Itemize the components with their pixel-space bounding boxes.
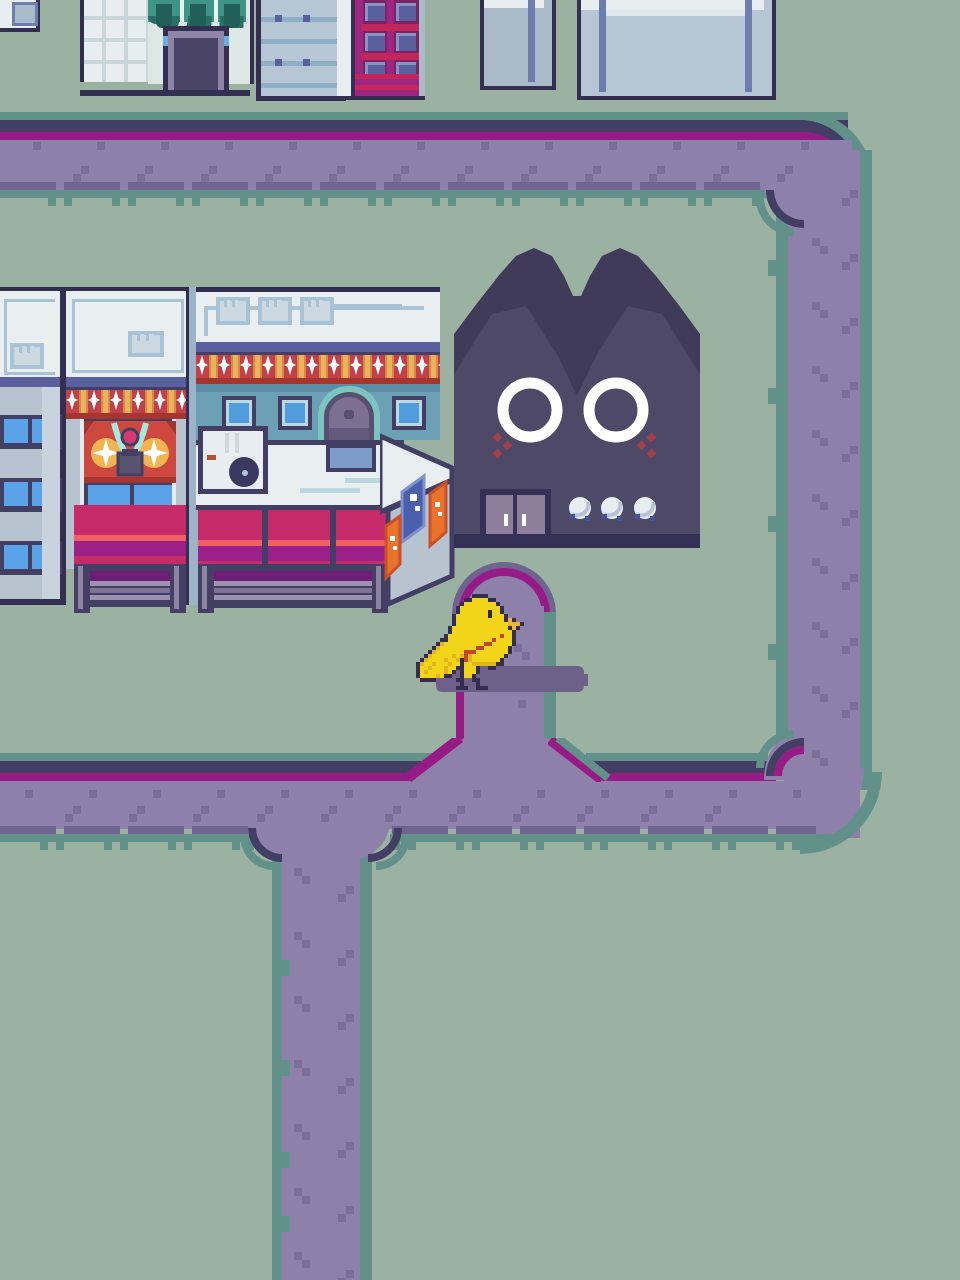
path-dot bbox=[457, 174, 465, 182]
path-dot bbox=[25, 790, 33, 798]
path-dot bbox=[785, 166, 793, 174]
path-dot bbox=[289, 142, 297, 150]
path-dot bbox=[329, 174, 337, 182]
stall-band bbox=[66, 377, 190, 387]
shop-window bbox=[222, 396, 256, 430]
path-dot bbox=[302, 876, 310, 884]
bird-shadow bbox=[552, 674, 588, 686]
path-dot bbox=[457, 806, 465, 814]
path-dot bbox=[649, 174, 657, 182]
right-path-teal-left bbox=[776, 216, 788, 756]
teal-notch bbox=[282, 1060, 290, 1076]
path-dot bbox=[585, 806, 593, 814]
teal-notch bbox=[282, 1216, 290, 1232]
path-dot bbox=[518, 700, 526, 708]
path-dot bbox=[346, 1270, 354, 1278]
path-dot bbox=[850, 574, 858, 582]
door-panel bbox=[174, 38, 218, 90]
path-dot bbox=[820, 694, 828, 702]
lower-path-navy-edge bbox=[0, 761, 436, 773]
path-dot bbox=[346, 1014, 354, 1022]
branch-teal-left bbox=[272, 846, 282, 1280]
path-dot bbox=[265, 806, 273, 814]
path-dot bbox=[338, 958, 346, 966]
path-dot bbox=[713, 174, 721, 182]
building-e-line bbox=[599, 0, 606, 92]
window-icon bbox=[300, 297, 334, 325]
tall-building-sign bbox=[0, 287, 60, 381]
path-dot bbox=[294, 868, 302, 876]
path-dot bbox=[812, 302, 820, 310]
green-awning bbox=[148, 0, 246, 22]
building-c-white-column bbox=[337, 0, 355, 96]
path-dot bbox=[850, 510, 858, 518]
path-dot bbox=[137, 806, 145, 814]
building-b bbox=[256, 0, 346, 101]
led-icon bbox=[207, 455, 216, 460]
path-dot bbox=[820, 630, 828, 638]
building-d-column bbox=[528, 0, 535, 82]
path-dot bbox=[641, 814, 649, 822]
path-dot bbox=[842, 518, 850, 526]
path-dot bbox=[393, 806, 401, 814]
building-c-right-column bbox=[419, 0, 425, 96]
path-dot bbox=[329, 806, 337, 814]
path-dot bbox=[302, 940, 310, 948]
path-dot bbox=[842, 710, 850, 718]
path-dot bbox=[265, 174, 273, 182]
top-path-magenta-edge bbox=[0, 132, 844, 140]
path-dot bbox=[793, 790, 801, 798]
path-dot bbox=[601, 790, 609, 798]
path-dot bbox=[729, 790, 737, 798]
path-dot bbox=[346, 1142, 354, 1150]
path-dot bbox=[137, 174, 145, 182]
path-dot bbox=[345, 790, 353, 798]
path-dot bbox=[842, 326, 850, 334]
lower-path-bump-teeth bbox=[40, 842, 254, 850]
teal-notch bbox=[768, 644, 776, 660]
stall-sign bbox=[66, 287, 190, 381]
path-dot bbox=[473, 790, 481, 798]
top-path-bump-dark bbox=[0, 182, 764, 190]
path-dot bbox=[812, 494, 820, 502]
top-path-bump-teeth bbox=[48, 198, 768, 206]
path-dot bbox=[820, 374, 828, 382]
path-dot bbox=[89, 790, 97, 798]
shop-shutter-shadow bbox=[212, 571, 372, 581]
path-dot bbox=[353, 142, 361, 150]
teal-notch bbox=[768, 388, 776, 404]
plant-icon bbox=[190, 4, 206, 28]
top-path-bump-teal bbox=[0, 190, 770, 198]
path-dot bbox=[73, 174, 81, 182]
path-dot bbox=[337, 166, 345, 174]
path-dot bbox=[842, 582, 850, 590]
path-dot bbox=[577, 814, 585, 822]
path-dot bbox=[209, 166, 217, 174]
awning-divider bbox=[180, 0, 184, 22]
stall-awning bbox=[66, 387, 190, 419]
path-dot bbox=[609, 142, 617, 150]
stall-shutter-base bbox=[88, 601, 178, 607]
path-dot bbox=[593, 166, 601, 174]
lower-path-teal-edge bbox=[586, 753, 768, 761]
building-a bbox=[80, 0, 250, 96]
window-icon bbox=[128, 331, 164, 357]
path-dot bbox=[521, 806, 529, 814]
path-dot bbox=[513, 814, 521, 822]
lower-path-teal-edge bbox=[0, 753, 436, 761]
grid-dot bbox=[275, 15, 282, 22]
path-dot bbox=[294, 1124, 302, 1132]
path-dot bbox=[417, 142, 425, 150]
teal-notch bbox=[768, 516, 776, 532]
shop-plaque bbox=[326, 444, 376, 472]
bird-sprite[interactable] bbox=[416, 594, 536, 690]
path-dot bbox=[850, 318, 858, 326]
path-dot bbox=[193, 814, 201, 822]
path-dot bbox=[665, 790, 673, 798]
path-dot bbox=[257, 814, 265, 822]
shop-shutter-base bbox=[212, 601, 372, 608]
path-dot bbox=[129, 814, 137, 822]
lower-path-magenta-edge bbox=[586, 773, 776, 781]
path-dot bbox=[820, 438, 828, 446]
path-dot bbox=[585, 174, 593, 182]
path-dot bbox=[97, 142, 105, 150]
stub-flare bbox=[400, 738, 612, 782]
path-dot bbox=[842, 390, 850, 398]
path-dot bbox=[657, 166, 665, 174]
cat-door[interactable] bbox=[483, 492, 548, 540]
building-d bbox=[480, 0, 556, 90]
c-panel bbox=[396, 33, 416, 51]
shop-window bbox=[278, 396, 312, 430]
grid-dot bbox=[303, 15, 310, 22]
door-panel-dark bbox=[329, 428, 369, 440]
path-dot bbox=[449, 814, 457, 822]
c-panel bbox=[365, 62, 385, 74]
lower-path-bump-teal bbox=[390, 834, 830, 842]
path-dot bbox=[777, 174, 785, 182]
path-dot bbox=[153, 790, 161, 798]
tall-building bbox=[0, 287, 66, 605]
building-fragment-topleft bbox=[0, 0, 40, 32]
path-dot bbox=[850, 638, 858, 646]
cat-building bbox=[452, 244, 702, 549]
path-dot bbox=[465, 166, 473, 174]
c-panel bbox=[396, 3, 416, 21]
shop-band bbox=[196, 342, 440, 352]
top-path-navy-edge bbox=[0, 120, 848, 132]
path-dot bbox=[820, 310, 828, 318]
path-dot bbox=[812, 238, 820, 246]
lower-path-bump-dark bbox=[392, 826, 816, 834]
path-dot bbox=[346, 886, 354, 894]
path-dot bbox=[281, 790, 289, 798]
vent-line bbox=[225, 433, 229, 453]
path-dot bbox=[649, 806, 657, 814]
path-dot bbox=[294, 1060, 302, 1068]
stall-banner bbox=[84, 421, 176, 489]
path-dot bbox=[842, 646, 850, 654]
shop-window bbox=[392, 396, 426, 430]
band-divider bbox=[330, 510, 336, 571]
path-dot bbox=[33, 142, 41, 150]
plant-icon bbox=[156, 4, 172, 28]
c-panel bbox=[365, 33, 385, 51]
path-dot bbox=[65, 814, 73, 822]
path-dot bbox=[521, 174, 529, 182]
ac-unit bbox=[198, 426, 268, 494]
lower-path-bump-dark bbox=[0, 826, 252, 834]
path-dot bbox=[401, 166, 409, 174]
path-dot bbox=[409, 790, 417, 798]
path-dot bbox=[201, 174, 209, 182]
path-dot bbox=[321, 814, 329, 822]
stall-leg bbox=[74, 566, 90, 613]
teal-notch bbox=[768, 260, 776, 276]
c-bar bbox=[361, 24, 419, 31]
path-dot bbox=[812, 558, 820, 566]
path-dot bbox=[302, 1132, 310, 1140]
branch-teal-right bbox=[360, 846, 372, 1280]
right-path-teal-right bbox=[860, 150, 872, 790]
path-dot bbox=[850, 254, 858, 262]
shop-awning bbox=[196, 352, 440, 384]
shop-sign bbox=[196, 287, 440, 347]
sign-frame bbox=[204, 306, 208, 336]
building-e-top-band bbox=[581, 0, 764, 10]
teal-notch bbox=[282, 1152, 290, 1168]
path-dot bbox=[294, 1188, 302, 1196]
path-dot bbox=[529, 166, 537, 174]
c-panel bbox=[365, 3, 385, 21]
branch-fillet-teal bbox=[240, 836, 274, 870]
path-dot bbox=[842, 454, 850, 462]
path-dot bbox=[850, 190, 858, 198]
path-dot bbox=[346, 950, 354, 958]
path-dot bbox=[537, 790, 545, 798]
grid-dot bbox=[275, 59, 282, 66]
path-dot bbox=[850, 382, 858, 390]
path-dot bbox=[820, 566, 828, 574]
knob-icons bbox=[569, 497, 656, 521]
path-dot bbox=[346, 1078, 354, 1086]
path-dot bbox=[302, 1196, 310, 1204]
teal-notch bbox=[282, 960, 290, 976]
branch-fillet-teal bbox=[376, 836, 410, 870]
lower-path-bump-teeth bbox=[392, 842, 808, 850]
building-a-window-grid bbox=[80, 0, 152, 82]
window-icon bbox=[10, 343, 44, 369]
path-dot bbox=[225, 142, 233, 150]
path-dot bbox=[346, 1206, 354, 1214]
stall-shutter-shadow bbox=[88, 571, 178, 581]
building-e-line bbox=[745, 0, 752, 92]
path-dot bbox=[338, 1086, 346, 1094]
vent-line bbox=[235, 433, 239, 453]
paw-icon bbox=[344, 410, 354, 419]
window-icon bbox=[216, 297, 250, 325]
path-dot bbox=[481, 142, 489, 150]
grid-dot bbox=[303, 59, 310, 66]
shop-counter-band[interactable] bbox=[198, 510, 400, 571]
path-dot bbox=[338, 1214, 346, 1222]
window-icon bbox=[12, 2, 38, 26]
stall-shutter bbox=[88, 581, 178, 603]
door-accent bbox=[224, 36, 229, 46]
path-dot bbox=[145, 166, 153, 174]
cat-base bbox=[454, 534, 700, 548]
building-e bbox=[577, 0, 776, 100]
plant-icon bbox=[224, 4, 240, 28]
path-dot bbox=[850, 702, 858, 710]
shop-shutter bbox=[212, 581, 372, 603]
c-panel bbox=[396, 62, 416, 74]
lower-path-bump-teal bbox=[0, 834, 254, 842]
path-dot bbox=[842, 262, 850, 270]
path-dot bbox=[393, 174, 401, 182]
path-dot bbox=[294, 932, 302, 940]
stall-counter[interactable] bbox=[74, 505, 186, 571]
door-accent bbox=[163, 36, 168, 46]
path-dot bbox=[820, 758, 828, 766]
path-dot bbox=[201, 806, 209, 814]
lower-path-navy-edge bbox=[586, 761, 772, 773]
path-dot bbox=[812, 750, 820, 758]
path-dot bbox=[820, 246, 828, 254]
fan-hub bbox=[242, 470, 248, 476]
path-dot bbox=[302, 1004, 310, 1012]
path-dot bbox=[812, 686, 820, 694]
path-dot bbox=[217, 790, 225, 798]
building-d-top-band bbox=[484, 0, 544, 8]
path-dot bbox=[801, 142, 809, 150]
inner-corner-teal-arc bbox=[756, 198, 794, 236]
band-divider bbox=[262, 510, 268, 571]
c-bar bbox=[361, 53, 419, 60]
path-dot bbox=[705, 814, 713, 822]
path-dot bbox=[385, 814, 393, 822]
path-dot bbox=[721, 166, 729, 174]
c-frame bbox=[387, 0, 394, 74]
path-dot bbox=[338, 894, 346, 902]
path-dot bbox=[302, 1260, 310, 1268]
game-viewport[interactable] bbox=[0, 0, 960, 1280]
path-dot bbox=[73, 806, 81, 814]
path-dot bbox=[737, 142, 745, 150]
tall-building-pilaster bbox=[42, 387, 60, 599]
roof-streak bbox=[300, 488, 360, 493]
building-c bbox=[337, 0, 425, 100]
sign-frame bbox=[332, 304, 402, 310]
path-dot bbox=[273, 166, 281, 174]
tall-building-band bbox=[0, 377, 60, 387]
top-path-teal-edge bbox=[0, 112, 848, 120]
path-dot bbox=[81, 166, 89, 174]
lower-path-magenta-edge bbox=[0, 773, 436, 781]
shop-leg bbox=[198, 566, 214, 613]
path-dot bbox=[820, 502, 828, 510]
building-e-sill bbox=[606, 10, 745, 16]
window-icon bbox=[258, 297, 292, 325]
path-dot bbox=[713, 806, 721, 814]
path-dot bbox=[812, 622, 820, 630]
path-dot bbox=[812, 430, 820, 438]
shop-door[interactable] bbox=[324, 392, 374, 440]
roof-streak bbox=[345, 478, 385, 483]
path-dot bbox=[338, 1150, 346, 1158]
stall-leg bbox=[170, 566, 186, 613]
path-dot bbox=[294, 996, 302, 1004]
path-dot bbox=[161, 142, 169, 150]
path-dot bbox=[338, 1022, 346, 1030]
path-dot bbox=[673, 142, 681, 150]
path-dot bbox=[294, 1252, 302, 1260]
path-dot bbox=[850, 446, 858, 454]
path-dot bbox=[842, 198, 850, 206]
path-dot bbox=[812, 366, 820, 374]
awning-divider bbox=[214, 0, 218, 22]
path-dot bbox=[545, 142, 553, 150]
path-dot bbox=[302, 1068, 310, 1076]
c-stripes bbox=[355, 74, 419, 96]
building-a-door[interactable] bbox=[163, 26, 229, 90]
